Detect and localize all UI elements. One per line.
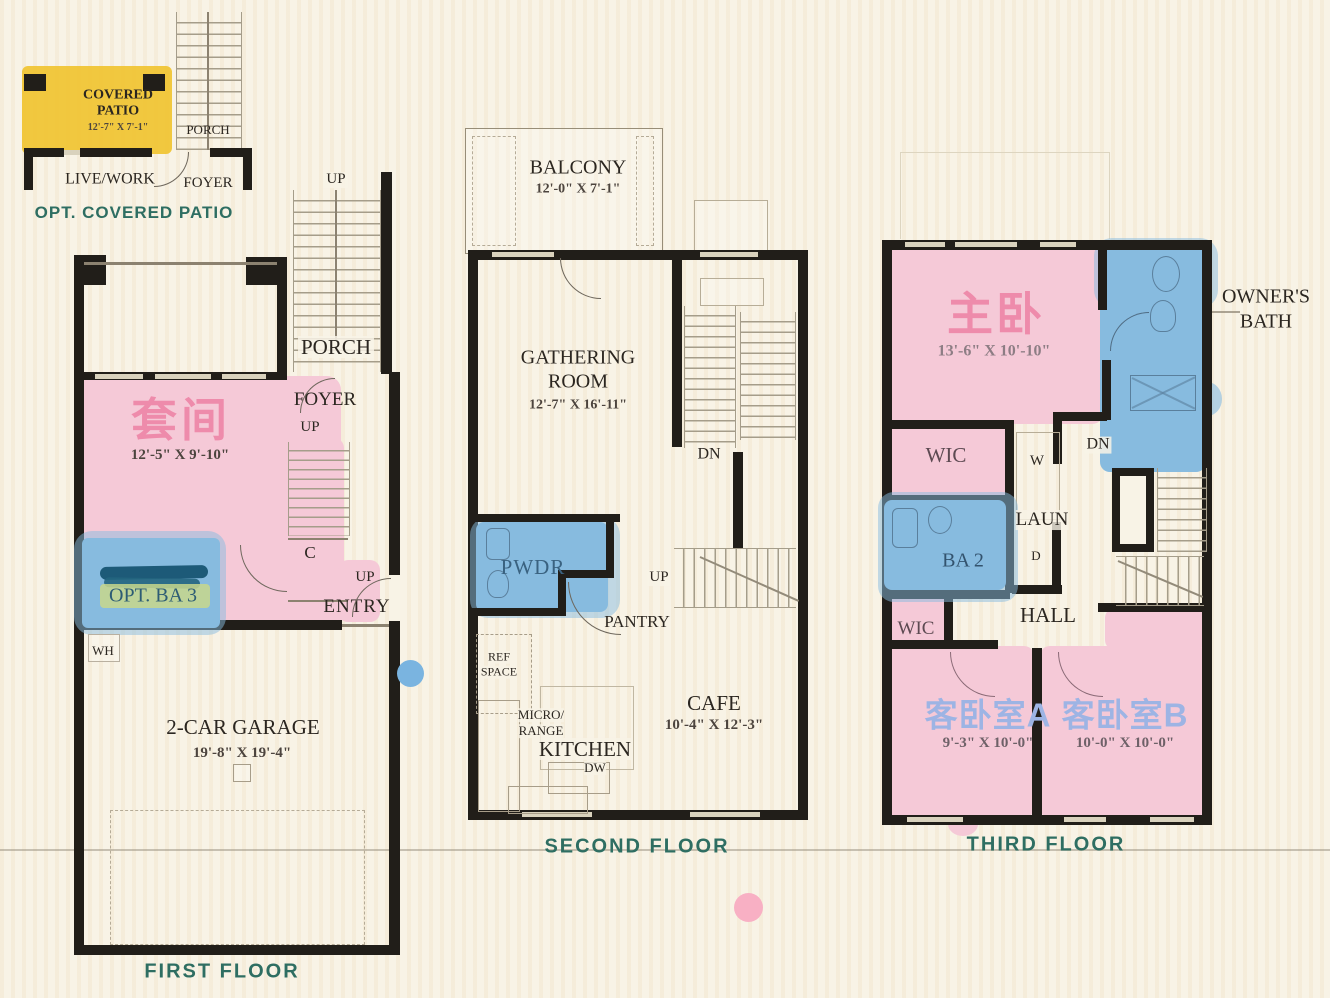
room-dims-cafe: 10'-4" X 12'-3" xyxy=(665,718,763,734)
label-up-foyer: UP xyxy=(300,420,319,436)
room-label-cafe: CAFE xyxy=(687,692,741,714)
room-label-opt-ba3: OPT. BA 3 xyxy=(109,586,197,607)
label-dn: DN xyxy=(1084,437,1111,454)
room-label-gathering: GATHERING xyxy=(521,348,635,369)
window xyxy=(690,812,760,817)
room-dims-master: 13'-6" X 10'-10" xyxy=(938,344,1051,361)
interior-stairs xyxy=(288,442,350,536)
stairs xyxy=(1116,556,1204,606)
label-dryer: D xyxy=(1031,549,1040,563)
label-ref-space: REF xyxy=(488,651,510,664)
room-label-live-work: LIVE/WORK xyxy=(65,172,155,189)
washer-box xyxy=(1016,432,1060,520)
wall xyxy=(733,452,743,548)
room-label-hall: HALL xyxy=(1020,604,1076,626)
room-dims-suite: 12'-5" X 9'-10" xyxy=(131,448,229,464)
ba2-tub xyxy=(892,508,918,548)
room-label-garage: 2-CAR GARAGE xyxy=(166,716,319,738)
room-label-owners-bath: OWNER'S xyxy=(1222,287,1310,308)
room-dims-garage: 19'-8" X 19'-4" xyxy=(193,746,291,762)
garage-apron xyxy=(110,810,365,945)
room-label-covered-patio: PATIO xyxy=(97,105,139,120)
callout-line xyxy=(1212,311,1240,313)
room-label-wic-lower: WIC xyxy=(898,619,935,639)
annotation-bedroom-a: 客卧室A xyxy=(925,699,1052,734)
balcony-detail xyxy=(636,136,654,246)
caption-third-floor: THIRD FLOOR xyxy=(967,835,1126,856)
wall xyxy=(558,570,614,578)
annotation-suite: 套间 xyxy=(131,396,231,444)
wall xyxy=(472,514,620,522)
wall xyxy=(74,945,400,955)
room-dims-balcony: 12'-0" X 7'-1" xyxy=(536,183,621,198)
wall xyxy=(606,514,614,576)
balcony-detail xyxy=(472,136,516,246)
room-label-closet: C xyxy=(304,544,315,562)
wall xyxy=(1052,522,1061,592)
stair-rail xyxy=(335,190,337,340)
room-label-wic-upper: WIC xyxy=(926,444,967,466)
annotation-master-bedroom: 主卧 xyxy=(947,290,1045,338)
wall xyxy=(24,148,33,190)
bedroom-b-highlight xyxy=(1105,608,1205,650)
stairs xyxy=(1157,468,1207,552)
room-label-gathering: ROOM xyxy=(548,372,608,393)
room-dims-covered-patio: 12'-7" X 7'-1" xyxy=(88,123,149,134)
bath-sink xyxy=(1152,256,1180,292)
wall xyxy=(798,250,808,820)
stairs-dn xyxy=(684,306,736,448)
window xyxy=(95,374,143,379)
room-label-pantry: PANTRY xyxy=(604,613,670,631)
stairs-up xyxy=(674,548,796,608)
pink-dot-annotation xyxy=(734,893,763,922)
wall xyxy=(1098,246,1107,310)
kitchen-sink xyxy=(508,786,588,814)
room-dims-gathering: 12'-7" X 16'-11" xyxy=(529,399,627,414)
floor-plan-sheet: COVERED PATIO 12'-7" X 7'-1" PORCH LIVE/… xyxy=(0,0,1330,998)
ba2-toilet xyxy=(928,506,952,534)
window xyxy=(907,817,963,822)
wall xyxy=(882,420,1014,429)
window xyxy=(700,252,758,257)
bath-toilet xyxy=(1150,300,1176,332)
window xyxy=(222,374,266,379)
room-label-laundry: LAUN xyxy=(1016,510,1069,530)
wall xyxy=(277,257,287,377)
stairs-dn xyxy=(740,312,796,440)
label-water-heater: WH xyxy=(92,644,114,658)
label-ref-space: SPACE xyxy=(481,666,517,679)
wall xyxy=(74,255,106,285)
window xyxy=(1040,242,1076,247)
wall-thin xyxy=(342,624,389,627)
wall xyxy=(472,608,562,616)
window xyxy=(64,150,80,155)
room-label-ba2: BA 2 xyxy=(942,551,984,572)
room-label-porch: PORCH xyxy=(298,336,374,358)
window xyxy=(492,252,554,257)
roofline xyxy=(900,152,1110,239)
room-label-owners-bath: BATH xyxy=(1240,312,1292,333)
label-dn: DN xyxy=(697,447,720,464)
label-dw: DW xyxy=(584,761,606,775)
annotation-bedroom-b: 客卧室B xyxy=(1062,699,1189,734)
wall xyxy=(882,640,998,649)
caption-opt-covered-patio: OPT. COVERED PATIO xyxy=(35,204,234,222)
window xyxy=(1150,817,1194,822)
blue-dot-annotation xyxy=(397,660,424,687)
caption-first-floor: FIRST FLOOR xyxy=(144,962,299,983)
label-washer: W xyxy=(1030,454,1044,470)
wall xyxy=(381,172,392,374)
room-label-porch-small: PORCH xyxy=(186,123,229,137)
stair-enclosure xyxy=(1112,468,1154,552)
wall xyxy=(1102,360,1111,420)
room-label-balcony: BALCONY xyxy=(530,158,627,179)
window xyxy=(905,242,945,247)
room-label-kitchen: KITCHEN xyxy=(539,738,631,760)
label-micro-range: RANGE xyxy=(519,724,564,738)
room-dims-bedroom-a: 9'-3" X 10'-0" xyxy=(943,736,1034,752)
room-label-pwdr: PWDR xyxy=(501,556,566,578)
label-up-porch: UP xyxy=(323,172,348,188)
garage-post xyxy=(233,764,251,782)
room-label-covered-patio: COVERED xyxy=(83,89,153,104)
closet-wall xyxy=(288,538,348,540)
room-label-foyer-small: FOYER xyxy=(183,176,232,192)
window-bay xyxy=(694,200,768,252)
wall xyxy=(80,148,152,157)
caption-second-floor: SECOND FLOOR xyxy=(544,837,729,858)
wall xyxy=(672,255,682,447)
stair-landing xyxy=(700,278,764,306)
label-micro-range: MICRO/ xyxy=(518,708,564,722)
wall-thin xyxy=(84,262,279,265)
wall xyxy=(389,372,400,955)
window xyxy=(155,374,211,379)
door-arc xyxy=(560,258,601,299)
window xyxy=(955,242,1017,247)
wall xyxy=(1012,585,1062,594)
wall xyxy=(24,74,46,91)
window xyxy=(1064,817,1106,822)
wall xyxy=(243,148,252,190)
label-up: UP xyxy=(647,570,670,586)
room-dims-bedroom-b: 10'-0" X 10'-0" xyxy=(1076,736,1174,752)
